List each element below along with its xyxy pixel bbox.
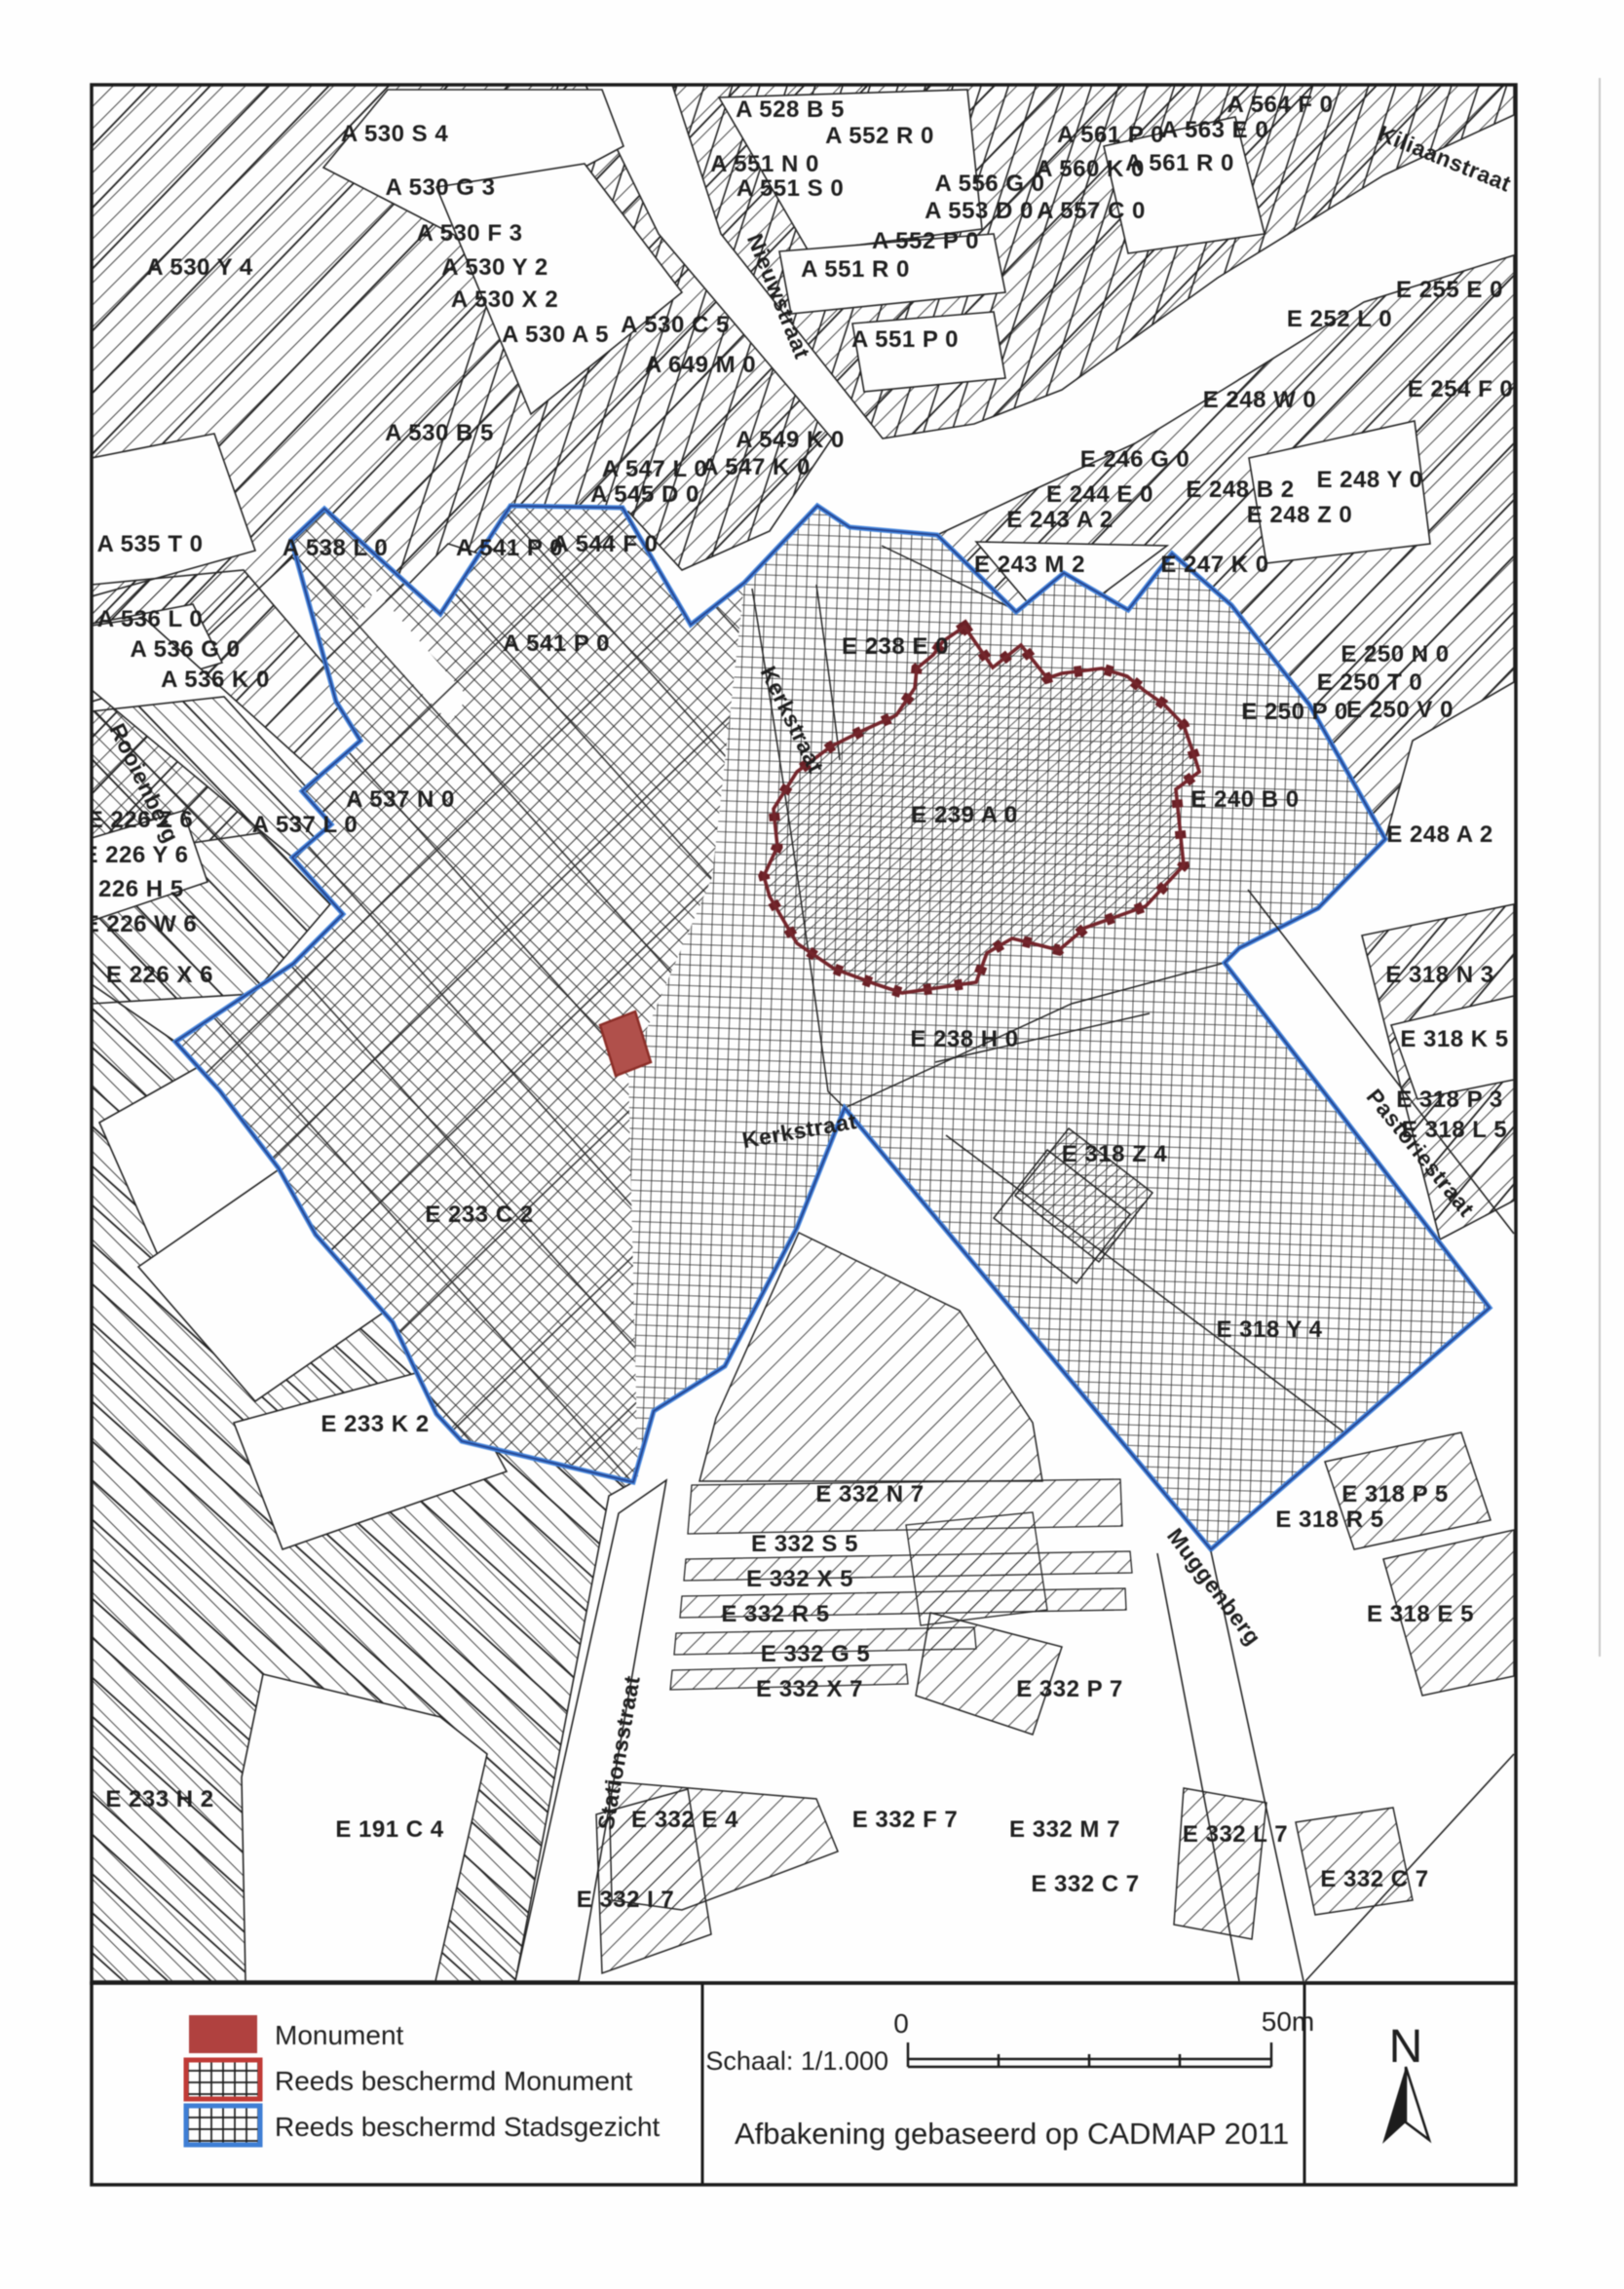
svg-text:E 250 T 0: E 250 T 0 xyxy=(1317,669,1423,696)
svg-text:E 246 G 0: E 246 G 0 xyxy=(1080,446,1190,473)
svg-text:A 545 D 0: A 545 D 0 xyxy=(590,481,699,508)
svg-text:E 332 R 5: E 332 R 5 xyxy=(721,1601,829,1627)
svg-text:Afbakening gebaseerd op CADMAP: Afbakening gebaseerd op CADMAP 2011 xyxy=(735,2117,1289,2151)
svg-text:Monument: Monument xyxy=(275,2020,404,2050)
svg-text:A 536 G 0: A 536 G 0 xyxy=(130,636,240,663)
svg-text:E 244 E 0: E 244 E 0 xyxy=(1046,481,1153,508)
svg-text:E 226 Y 6: E 226 Y 6 xyxy=(82,842,188,868)
svg-text:E 318 K 5: E 318 K 5 xyxy=(1400,1026,1508,1052)
svg-text:Schaal: 1/1.000: Schaal: 1/1.000 xyxy=(705,2046,888,2076)
svg-text:A 530 B 5: A 530 B 5 xyxy=(385,420,494,446)
svg-text:A 551 R 0: A 551 R 0 xyxy=(801,256,910,283)
svg-text:E 233 C 2: E 233 C 2 xyxy=(425,1202,533,1228)
svg-text:A 541 P 0: A 541 P 0 xyxy=(456,535,563,561)
svg-text:E 250 N 0: E 250 N 0 xyxy=(1341,641,1449,668)
svg-text:A 552 R 0: A 552 R 0 xyxy=(825,123,934,149)
svg-text:E 243 M 2: E 243 M 2 xyxy=(974,552,1085,578)
svg-text:E 332 C 7: E 332 C 7 xyxy=(1031,1871,1139,1897)
svg-text:A 563 E 0: A 563 E 0 xyxy=(1161,117,1268,143)
svg-text:A 649 M 0: A 649 M 0 xyxy=(645,352,756,378)
svg-text:E 254 F 0: E 254 F 0 xyxy=(1408,376,1514,402)
svg-text:A 544 F 0: A 544 F 0 xyxy=(552,531,659,557)
svg-text:E 332 L 7: E 332 L 7 xyxy=(1183,1821,1288,1848)
svg-text:A 560 K 0: A 560 K 0 xyxy=(1036,156,1145,182)
svg-text:A 528 B 5: A 528 B 5 xyxy=(736,96,845,123)
svg-text:A 537 L 0: A 537 L 0 xyxy=(252,812,359,838)
svg-text:E 248 B 2: E 248 B 2 xyxy=(1186,477,1294,503)
svg-text:E 332 F 7: E 332 F 7 xyxy=(852,1807,959,1833)
svg-text:A 530 Y 4: A 530 Y 4 xyxy=(146,254,253,281)
svg-text:A 556 G 0: A 556 G 0 xyxy=(934,171,1044,197)
svg-text:A 564 F 0: A 564 F 0 xyxy=(1227,92,1334,118)
svg-text:E 318 N 3: E 318 N 3 xyxy=(1385,962,1493,988)
svg-text:A 530 F 3: A 530 F 3 xyxy=(417,220,523,247)
svg-text:E 240 B 0: E 240 B 0 xyxy=(1190,786,1299,813)
svg-text:E 248 Z 0: E 248 Z 0 xyxy=(1247,502,1353,528)
svg-text:E 248 W 0: E 248 W 0 xyxy=(1203,387,1317,413)
svg-text:Reeds beschermd Stadsgezicht: Reeds beschermd Stadsgezicht xyxy=(275,2112,661,2142)
svg-text:E 318 Y 4: E 318 Y 4 xyxy=(1216,1316,1322,1343)
svg-text:A 536 L 0: A 536 L 0 xyxy=(97,606,204,632)
svg-text:E 332 G 5: E 332 G 5 xyxy=(761,1641,871,1667)
svg-text:E 243 A 2: E 243 A 2 xyxy=(1006,507,1113,533)
svg-text:A 541 P 0: A 541 P 0 xyxy=(503,630,610,657)
svg-text:A 547 L 0: A 547 L 0 xyxy=(602,456,708,482)
svg-text:E 332 X 7: E 332 X 7 xyxy=(756,1676,863,1702)
svg-text:E 239 A 0: E 239 A 0 xyxy=(911,802,1017,828)
svg-text:E 252 L 0: E 252 L 0 xyxy=(1287,306,1392,332)
svg-text:A 538 L 0: A 538 L 0 xyxy=(283,535,389,561)
svg-text:A 551 P 0: A 551 P 0 xyxy=(851,326,959,353)
svg-text:E 332 E 4: E 332 E 4 xyxy=(631,1807,738,1833)
svg-text:A 537 N 0: A 537 N 0 xyxy=(346,786,455,813)
svg-text:A 536 K 0: A 536 K 0 xyxy=(161,667,270,693)
svg-text:E 248 A 2: E 248 A 2 xyxy=(1386,821,1492,848)
svg-text:A 530 G 3: A 530 G 3 xyxy=(385,174,495,201)
svg-text:A 530 C 5: A 530 C 5 xyxy=(621,312,730,338)
svg-text:E 318 Z 4: E 318 Z 4 xyxy=(1062,1141,1168,1167)
svg-text:E 226 W 6: E 226 W 6 xyxy=(84,911,198,937)
svg-text:E 233 K 2: E 233 K 2 xyxy=(321,1411,429,1437)
svg-text:N: N xyxy=(1389,2021,1423,2073)
svg-text:E 318 R 5: E 318 R 5 xyxy=(1275,1507,1383,1533)
svg-text:E 238 H 0: E 238 H 0 xyxy=(910,1026,1018,1052)
svg-text:E 332 X 5: E 332 X 5 xyxy=(746,1566,853,1592)
svg-text:E 332 S 5: E 332 S 5 xyxy=(751,1531,858,1557)
svg-text:E 332 M 7: E 332 M 7 xyxy=(1009,1816,1120,1843)
svg-text:A 551 S 0: A 551 S 0 xyxy=(736,175,844,202)
svg-text:E 318 P 3: E 318 P 3 xyxy=(1396,1087,1502,1113)
svg-text:E 247 K 0: E 247 K 0 xyxy=(1160,552,1268,578)
svg-text:A 530 X 2: A 530 X 2 xyxy=(451,286,558,313)
svg-text:E 332 I 7: E 332 I 7 xyxy=(577,1887,675,1913)
svg-text:A 561 P 0: A 561 P 0 xyxy=(1057,122,1164,148)
svg-text:A 530 Y 2: A 530 Y 2 xyxy=(441,254,548,281)
svg-text:Reeds beschermd Monument: Reeds beschermd Monument xyxy=(275,2066,633,2096)
svg-text:A 551 N 0: A 551 N 0 xyxy=(710,151,819,177)
svg-text:A 552 P 0: A 552 P 0 xyxy=(872,228,979,254)
svg-text:E 255 E 0: E 255 E 0 xyxy=(1396,277,1503,303)
svg-text:E 318 E 5: E 318 E 5 xyxy=(1367,1601,1474,1627)
svg-text:0: 0 xyxy=(893,2008,909,2039)
svg-text:50m: 50m xyxy=(1262,2006,1314,2037)
svg-text:E 233 H 2: E 233 H 2 xyxy=(105,1786,213,1812)
svg-text:A 549 K 0: A 549 K 0 xyxy=(736,427,845,453)
svg-text:E 191 C 4: E 191 C 4 xyxy=(335,1816,443,1843)
svg-text:A 547 K 0: A 547 K 0 xyxy=(701,454,811,480)
svg-text:E 250 P 0: E 250 P 0 xyxy=(1241,699,1347,725)
svg-text:A 530 A 5: A 530 A 5 xyxy=(502,322,609,348)
svg-text:E 250 V 0: E 250 V 0 xyxy=(1346,697,1454,723)
svg-text:E 332 C 7: E 332 C 7 xyxy=(1320,1866,1428,1892)
svg-text:A 557 C 0: A 557 C 0 xyxy=(1037,198,1146,224)
svg-text:E 332 N 7: E 332 N 7 xyxy=(815,1481,924,1507)
svg-text:A 535 T 0: A 535 T 0 xyxy=(97,531,204,557)
svg-text:E 318 P 5: E 318 P 5 xyxy=(1341,1481,1448,1507)
svg-text:E 332 P 7: E 332 P 7 xyxy=(1016,1676,1122,1702)
svg-text:A 553 D 0: A 553 D 0 xyxy=(925,198,1034,224)
svg-text:E 226 X 6: E 226 X 6 xyxy=(106,962,213,988)
svg-text:E 238 E 0: E 238 E 0 xyxy=(842,633,949,660)
svg-text:A 530 S 4: A 530 S 4 xyxy=(341,121,448,147)
svg-text:E 248 Y 0: E 248 Y 0 xyxy=(1316,467,1422,493)
